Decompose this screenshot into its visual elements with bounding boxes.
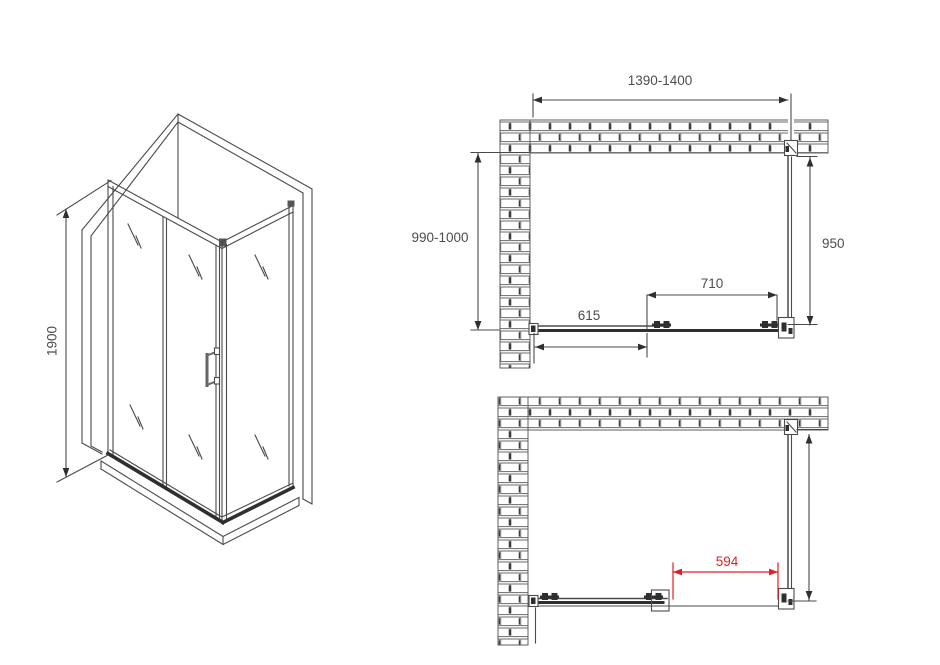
- corner-bracket: [785, 420, 798, 435]
- wall-profile-bracket: [529, 596, 538, 607]
- front-sliding-doors: [108, 180, 227, 519]
- bottom-plan-enclosure: [529, 420, 798, 644]
- shower-enclosure-drawing: 1900: [0, 0, 940, 665]
- technical-drawing-sheet: 1900: [0, 0, 940, 665]
- shower-tray: [101, 450, 299, 545]
- brick-wall-back: [498, 397, 828, 430]
- dimension-side-unlabeled: [788, 430, 827, 602]
- room-walls: [82, 114, 312, 504]
- dim-label-opening: 594: [716, 554, 739, 569]
- glass-shine-marks: [128, 224, 268, 459]
- dimension-opening: 594: [673, 554, 778, 599]
- corner-hardware: [779, 589, 795, 610]
- dimension-side-panel: 950: [788, 157, 845, 326]
- dim-label-overall-width: 1390-1400: [628, 73, 693, 88]
- door-rollers: [652, 321, 779, 328]
- dimension-height: 1900: [45, 181, 112, 483]
- bottom-plan-view: 594: [498, 397, 828, 645]
- top-plan-enclosure: [529, 141, 798, 339]
- dim-label-side-panel: 950: [822, 236, 845, 251]
- corner-bracket: [785, 141, 798, 156]
- isometric-view: 1900: [45, 114, 313, 545]
- brick-wall-back: [500, 120, 828, 153]
- brick-wall-left: [500, 120, 530, 368]
- dim-label-height: 1900: [45, 326, 60, 356]
- side-panel: [222, 201, 295, 522]
- dimension-fixed-panel: 615: [534, 308, 647, 363]
- side-panel-cap: [288, 201, 295, 207]
- top-plan-view: 1390-1400 990-1000 950 710: [411, 73, 844, 368]
- dim-label-depth: 990-1000: [411, 230, 468, 245]
- wall-profile-bracket: [529, 324, 538, 335]
- dim-label-fixed-panel: 615: [578, 308, 601, 323]
- dim-label-door-width: 710: [701, 276, 724, 291]
- brick-wall-left: [498, 397, 528, 645]
- door-handle: [207, 348, 220, 387]
- corner-hardware: [779, 318, 795, 339]
